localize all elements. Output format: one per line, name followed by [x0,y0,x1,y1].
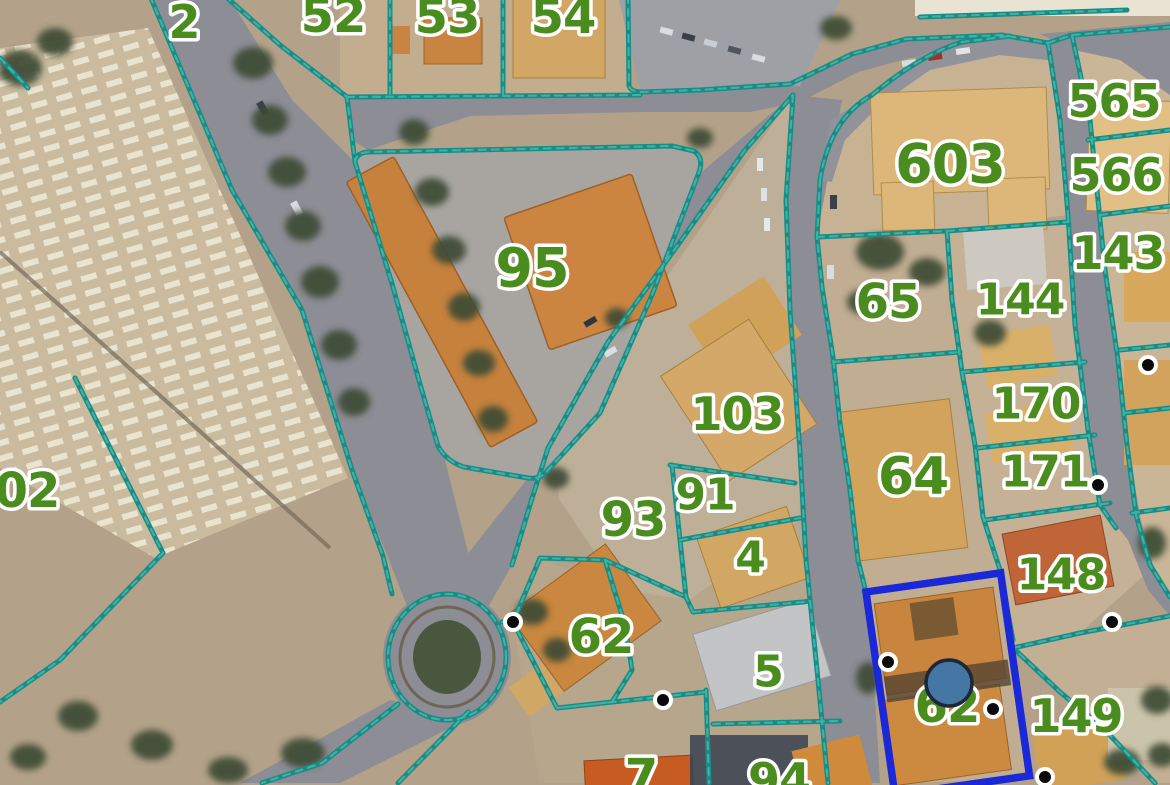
parcel-label-95[interactable]: 95 [495,237,568,300]
parcel-label-149[interactable]: 149 [1029,689,1122,743]
survey-marker-dot [880,654,896,670]
parcel-label-144[interactable]: 144 [976,275,1065,326]
parcel-label-103[interactable]: 103 [690,387,783,441]
parcel-label-91[interactable]: 91 [675,470,734,521]
parcel-label-02[interactable]: 02 [0,463,59,519]
survey-marker-dot [985,701,1001,717]
parcel-label-94[interactable]: 94 [748,753,810,785]
parcel-label-2[interactable]: 2 [168,0,199,49]
parcel-label-143[interactable]: 143 [1071,226,1164,280]
survey-marker-dot [655,692,671,708]
parcel-label-603[interactable]: 603 [895,133,1005,196]
parcel-label-52[interactable]: 52 [301,0,366,44]
parcel-label-65[interactable]: 65 [856,274,921,330]
selected-parcel-marker[interactable] [926,660,972,706]
survey-marker-dot [1090,477,1106,493]
parcel-label-62[interactable]: 62 [569,609,634,665]
parcel-label-7[interactable]: 7 [625,749,657,785]
map-canvas[interactable]: 2525354956035655661431446517064171148103… [0,0,1170,785]
parcel-label-565[interactable]: 565 [1067,74,1160,128]
parcel-label-171[interactable]: 171 [1001,447,1090,498]
parcel-label-93[interactable]: 93 [601,492,666,548]
parcel-label-64[interactable]: 64 [878,447,948,507]
parcel-label-4[interactable]: 4 [735,533,765,584]
parcel-label-148[interactable]: 148 [1017,550,1106,601]
parcel-label-566[interactable]: 566 [1069,148,1162,202]
parcel-label-5[interactable]: 5 [753,647,783,698]
survey-marker-dot [1140,357,1156,373]
parcel-label-53[interactable]: 53 [415,0,480,45]
survey-marker-dot [1037,769,1053,785]
survey-marker-dot [505,614,521,630]
survey-marker-dot [1104,614,1120,630]
map-viewport[interactable]: 2525354956035655661431446517064171148103… [0,0,1170,785]
parcel-label-54[interactable]: 54 [531,0,596,45]
parcel-label-170[interactable]: 170 [992,379,1081,430]
